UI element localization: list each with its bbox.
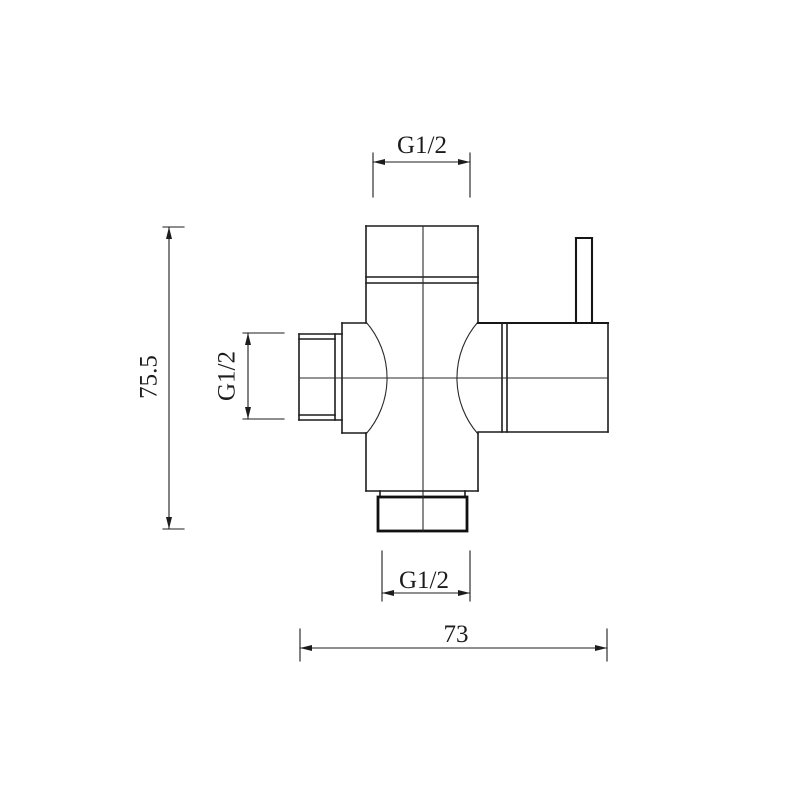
valve-technical-drawing: G1/2 75.5 G1/2 G1/2 73 [0,0,800,800]
bottom-thread-arrow-right [458,590,470,596]
bottom-thread-arrow-left [382,590,394,596]
left-port [299,334,342,420]
dimension-overall-height: 75.5 [136,227,184,529]
width-dim-arrow-left [300,645,312,651]
bottom-thread-label: G1/2 [399,567,449,594]
width-dim-arrow-right [595,645,607,651]
dimension-side-thread: G1/2 [214,333,284,419]
dimension-bottom-thread: G1/2 [382,551,470,601]
diverter-handle [576,238,592,323]
side-dim-arrow-top [245,333,251,345]
height-dim-arrow-top [166,227,172,239]
top-dim-arrow-left [373,159,385,165]
side-thread-label: G1/2 [214,351,241,401]
top-thread-label: G1/2 [397,132,447,159]
top-dim-arrow-right [458,159,470,165]
overall-height-label: 75.5 [136,355,163,399]
overall-width-label: 73 [444,621,469,648]
dimension-overall-width: 73 [300,621,607,661]
height-dim-arrow-bottom [166,517,172,529]
top-port-neck [366,226,478,323]
drawing-canvas: G1/2 75.5 G1/2 G1/2 73 [0,0,800,800]
center-body [342,322,478,491]
side-dim-arrow-bottom [245,407,251,419]
dimension-top-thread: G1/2 [373,132,470,197]
centerlines [299,226,608,531]
